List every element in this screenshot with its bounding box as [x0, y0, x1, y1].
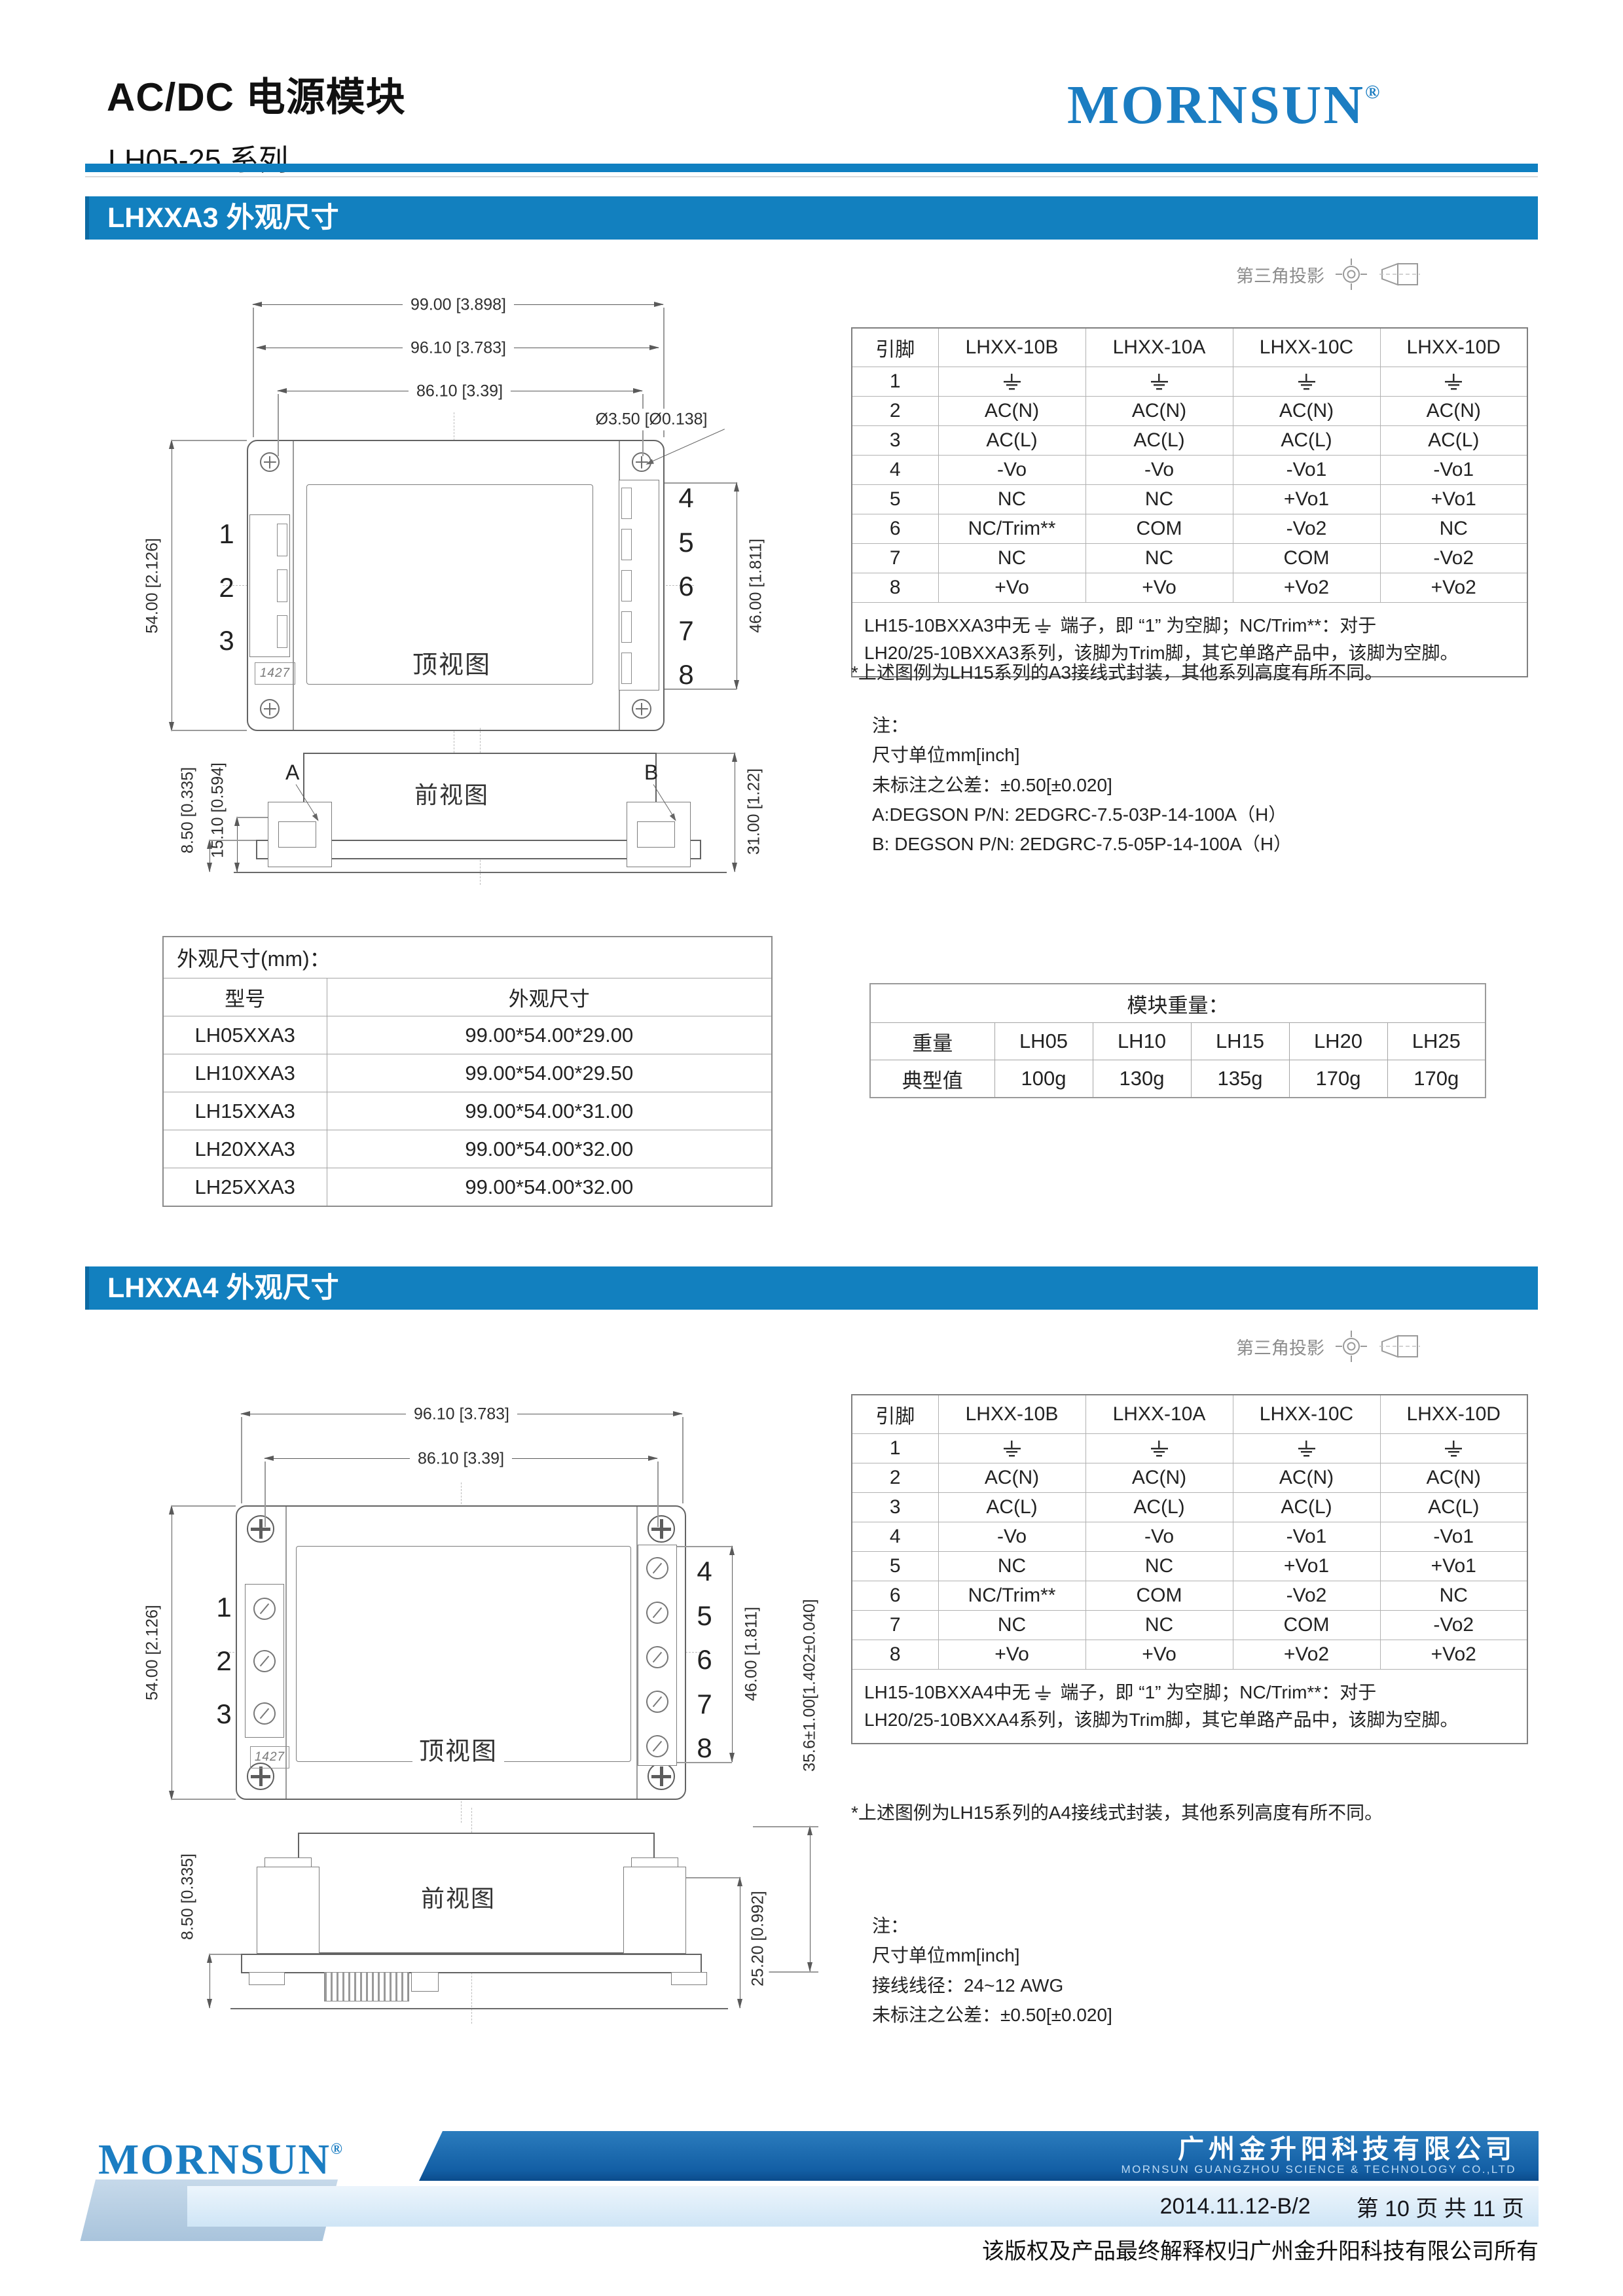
pin-cell: 6 — [852, 1581, 938, 1611]
pin-table-header: LHXX-10D — [1380, 328, 1527, 367]
terminal-pad — [621, 488, 632, 519]
weight-table-container: 模块重量：重量LH05LH10LH15LH20LH25典型值100g130g13… — [869, 983, 1486, 1098]
pin-cell: 1 — [852, 1434, 938, 1463]
case-badge: 1427 — [255, 662, 295, 685]
datasheet-page: AC/DC 电源模块 LH05-25 系列 MORNSUN® LHXXA3 外观… — [0, 0, 1623, 2296]
dim-line — [237, 817, 238, 872]
pin-number: 6 — [678, 573, 693, 600]
pin-cell: AC(L) — [938, 426, 1085, 456]
mounting-screw-icon — [247, 1515, 274, 1543]
pin-cell: NC — [1085, 1552, 1233, 1581]
note-line: 尺寸单位mm[inch] — [872, 740, 1292, 770]
pin-cell: NC — [1085, 1611, 1233, 1640]
pin-number: 7 — [678, 617, 693, 645]
callout-b: B — [644, 761, 658, 785]
extension-line — [278, 394, 279, 456]
footer-copyright: 该版权及产品最终解释权归广州金升阳科技有限公司所有 — [0, 2233, 1539, 2265]
dimension-cell: 99.00*54.00*32.00 — [327, 1130, 772, 1168]
dim-overall-height: 35.6±1.00[1.402±0.040] — [799, 1592, 821, 1778]
a3-notes: 注：尺寸单位mm[inch]未标注之公差：±0.50[±0.020]A:DEGS… — [872, 711, 1292, 859]
dimension-table-title: 外观尺寸(mm)： — [163, 937, 772, 978]
pin-cell: -Vo2 — [1380, 544, 1527, 573]
pin-number: 4 — [697, 1558, 712, 1585]
series-subtitle: LH05-25 系列 — [108, 136, 288, 179]
footer-company-en: MORNSUN GUANGZHOU SCIENCE & TECHNOLOGY C… — [1122, 2163, 1516, 2176]
dim-2520: 25.20 [0.992] — [748, 1884, 769, 1993]
mounting-screw-icon — [260, 452, 280, 472]
pin-cell: 7 — [852, 544, 938, 573]
top-view-label: 顶视图 — [406, 643, 498, 682]
pin-table-header: LHXX-10B — [938, 328, 1085, 367]
earth-ground-icon — [1034, 1685, 1051, 1701]
pin-table-header: LHXX-10A — [1085, 328, 1233, 367]
pin-cell: 5 — [852, 1552, 938, 1581]
weight-cell: LH10 — [1093, 1023, 1191, 1060]
terminal-tower-right — [623, 1867, 686, 1954]
doc-code: 2014.11.12-B/2 — [1160, 2194, 1311, 2219]
mounting-screw-icon — [632, 699, 651, 719]
pin-cell: 4 — [852, 1522, 938, 1552]
pin-cell: 5 — [852, 485, 938, 514]
dimension-table-header: 外观尺寸 — [327, 978, 772, 1016]
registered-mark: ® — [1365, 81, 1381, 103]
pin-table-note: LH15-10BXXA4中无 端子，即 “1” 为空脚；NC/Trim**：对于… — [852, 1670, 1527, 1744]
header-rule-shadow — [85, 176, 1538, 177]
earth-ground-icon — [1444, 1441, 1463, 1458]
projection-circle-icon — [1334, 1329, 1369, 1364]
pin-numbers-left: 123 — [213, 520, 240, 655]
a4-pin-table-container: 引脚LHXX-10BLHXX-10ALHXX-10CLHXX-10D12AC(N… — [851, 1394, 1528, 1744]
dim-850: 8.50 [0.335] — [177, 1847, 199, 1946]
pin-cell: 6 — [852, 514, 938, 544]
terminal-tower-left — [257, 1867, 319, 1954]
earth-ground-icon — [1002, 374, 1022, 391]
extension-line — [665, 689, 737, 690]
pin-number: 3 — [219, 627, 234, 655]
dim-3100: 31.00 [1.22] — [744, 762, 765, 861]
pin-number: 2 — [219, 574, 234, 601]
extension-line — [665, 482, 737, 484]
pin-number: 5 — [678, 529, 693, 556]
pin-table-header: LHXX-10C — [1233, 328, 1380, 367]
pin-cell: 7 — [852, 1611, 938, 1640]
pin-table-header: LHXX-10B — [938, 1395, 1085, 1434]
pin-cell: 8 — [852, 1640, 938, 1670]
ground-line — [234, 872, 727, 873]
footer-company-cn: 广州金升阳科技有限公司 — [1178, 2136, 1516, 2163]
dim-line — [172, 440, 172, 731]
note-line: B: DEGSON P/N: 2EDGRC-7.5-05P-14-100A（H） — [872, 829, 1292, 859]
weight-cell: LH20 — [1289, 1023, 1387, 1060]
dim-line — [737, 482, 737, 689]
pin-cell: NC — [1380, 514, 1527, 544]
pin-cell: +Vo — [1085, 573, 1233, 603]
pin-cell: AC(L) — [1085, 426, 1233, 456]
dimension-cell: LH15XXA3 — [163, 1092, 327, 1130]
pin-number: 3 — [216, 1700, 231, 1728]
module-separator — [293, 441, 294, 730]
mounting-screw-icon — [260, 699, 280, 719]
dim-hole: Ø3.50 [Ø0.138] — [588, 409, 716, 431]
pin-cell: COM — [1085, 1581, 1233, 1611]
extension-line — [172, 1799, 236, 1800]
projection-circle-icon — [1334, 257, 1369, 292]
pin-cell: +Vo1 — [1233, 485, 1380, 514]
bottom-connector-tab — [411, 1972, 439, 1992]
dimension-cell: LH10XXA3 — [163, 1054, 327, 1092]
terminal-pad — [277, 569, 287, 602]
dim-54: 54.00 [2.126] — [142, 531, 164, 640]
page-title: AC/DC 电源模块 — [107, 65, 406, 122]
bottom-connector-ribbed — [324, 1972, 409, 2001]
pin-cell — [1085, 367, 1233, 397]
weight-cell: 130g — [1093, 1060, 1191, 1098]
pin-numbers-right: 45678 — [673, 484, 699, 689]
note-line: 未标注之公差：±0.50[±0.020] — [872, 2000, 1112, 2030]
pin-cell: AC(L) — [1380, 1493, 1527, 1522]
pin-cell: COM — [1085, 514, 1233, 544]
dim-54: 54.00 [2.126] — [142, 1598, 164, 1707]
foot — [249, 1972, 285, 1985]
extension-line — [677, 1546, 732, 1547]
dim-line — [732, 1546, 733, 1762]
pin-cell: -Vo1 — [1233, 1522, 1380, 1552]
dimension-cell: 99.00*54.00*32.00 — [327, 1168, 772, 1207]
dim-46: 46.00 [1.811] — [746, 532, 767, 639]
dimension-cell: LH20XXA3 — [163, 1130, 327, 1168]
third-angle-projection: 第三角投影 — [1236, 1329, 1421, 1364]
pin-cell: +Vo2 — [1380, 573, 1527, 603]
ground-line — [230, 2008, 728, 2009]
pin-cell: AC(N) — [1380, 397, 1527, 426]
pin-cell: 4 — [852, 456, 938, 485]
pin-number: 1 — [219, 520, 234, 548]
pin-cell — [1380, 367, 1527, 397]
extension-line — [210, 1954, 241, 1955]
pin-cell: -Vo2 — [1233, 514, 1380, 544]
pin-cell: NC — [938, 1611, 1085, 1640]
pin-cell: COM — [1233, 544, 1380, 573]
dim-line — [810, 1826, 811, 1971]
pin-cell: +Vo — [1085, 1640, 1233, 1670]
pin-cell — [1085, 1434, 1233, 1463]
pin-cell: NC — [938, 544, 1085, 573]
pin-cell: +Vo1 — [1380, 1552, 1527, 1581]
pin-cell — [1233, 1434, 1380, 1463]
weight-cell: 重量 — [870, 1023, 994, 1060]
pin-cell: COM — [1233, 1611, 1380, 1640]
pin-cell: AC(L) — [1380, 426, 1527, 456]
extension-line — [172, 440, 247, 441]
pin-cell: AC(N) — [1085, 1463, 1233, 1493]
pin-numbers-right: 45678 — [691, 1558, 718, 1762]
pin-number: 1 — [216, 1594, 231, 1621]
pin-cell: 8 — [852, 573, 938, 603]
case-badge: 1427 — [250, 1746, 289, 1768]
earth-ground-icon — [1297, 374, 1317, 391]
projection-cone-icon — [1378, 1331, 1421, 1361]
dim-line — [210, 1954, 210, 2008]
note-line: 注： — [872, 711, 1292, 740]
dim-96: 96.10 [3.783] — [403, 338, 514, 359]
pin-cell: -Vo — [938, 456, 1085, 485]
pin-table-header: LHXX-10D — [1380, 1395, 1527, 1434]
pin-cell: AC(L) — [938, 1493, 1085, 1522]
pin-cell: AC(N) — [938, 1463, 1085, 1493]
page-info: 第 10 页 共 11 页 — [1357, 2191, 1524, 2223]
pin-cell — [1233, 367, 1380, 397]
earth-ground-icon — [1150, 374, 1169, 391]
pin-cell: 1 — [852, 367, 938, 397]
pin-table-header: LHXX-10C — [1233, 1395, 1380, 1434]
pin-cell: -Vo1 — [1380, 1522, 1527, 1552]
terminal-pad — [621, 529, 632, 560]
pin-cell: NC/Trim** — [938, 1581, 1085, 1611]
weight-cell: LH05 — [994, 1023, 1093, 1060]
pin-table-header: 引脚 — [852, 1395, 938, 1434]
pin-cell: AC(L) — [1233, 1493, 1380, 1522]
footer-mornsun-logo: MORNSUN® — [98, 2135, 344, 2185]
weight-cell: 170g — [1289, 1060, 1387, 1098]
note-line: 未标注之公差：±0.50[±0.020] — [872, 770, 1292, 800]
extension-line — [657, 753, 735, 754]
mornsun-logo: MORNSUN® — [1067, 73, 1381, 137]
dimension-table-header: 型号 — [163, 978, 327, 1016]
pin-cell: AC(N) — [1233, 1463, 1380, 1493]
pin-cell: +Vo2 — [1233, 1640, 1380, 1670]
pin-cell: AC(N) — [1233, 397, 1380, 426]
front-view-label: 前视图 — [408, 775, 496, 812]
callout-a: A — [285, 761, 299, 785]
registered-mark: ® — [331, 2141, 344, 2158]
extension-line — [237, 817, 268, 818]
earth-ground-icon — [1150, 1441, 1169, 1458]
dimension-cell: 99.00*54.00*29.00 — [327, 1016, 772, 1054]
dimension-cell: 99.00*54.00*29.50 — [327, 1054, 772, 1092]
weight-table-title: 模块重量： — [870, 984, 1486, 1023]
pin-cell: NC — [1085, 544, 1233, 573]
weight-cell: 170g — [1387, 1060, 1486, 1098]
pin-cell: 3 — [852, 1493, 938, 1522]
dim-1510: 15.10 [0.594] — [208, 756, 229, 865]
dim-850: 8.50 [0.335] — [177, 761, 199, 860]
weight-cell: 135g — [1191, 1060, 1289, 1098]
pin-cell: -Vo — [938, 1522, 1085, 1552]
pin-cell: NC/Trim** — [938, 514, 1085, 544]
dimension-cell: LH05XXA3 — [163, 1016, 327, 1054]
pin-cell — [938, 367, 1085, 397]
pin-cell: NC — [1380, 1581, 1527, 1611]
extension-line — [682, 1417, 684, 1503]
weight-cell: 典型值 — [870, 1060, 994, 1098]
mounting-screw-icon — [647, 1763, 675, 1790]
earth-ground-icon — [1034, 619, 1051, 634]
pin-table-header: LHXX-10A — [1085, 1395, 1233, 1434]
weight-cell: 100g — [994, 1060, 1093, 1098]
pin-cell: +Vo — [938, 573, 1085, 603]
terminal-pad — [277, 524, 287, 556]
dim-96: 96.10 [3.783] — [406, 1404, 517, 1426]
pin-number: 4 — [678, 484, 693, 512]
pin-cell: -Vo1 — [1233, 456, 1380, 485]
extension-line — [657, 1462, 659, 1527]
front-base — [241, 1954, 702, 1973]
pin-number: 5 — [697, 1602, 712, 1630]
earth-ground-icon — [1297, 1441, 1317, 1458]
dim-86: 86.10 [3.39] — [410, 1448, 512, 1470]
pin-cell: -Vo1 — [1380, 456, 1527, 485]
pin-number: 2 — [216, 1647, 231, 1675]
a4-figure-note: *上述图例为LH15系列的A4接线式封装，其他系列高度有所不同。 — [851, 1799, 1383, 1825]
dim-46: 46.00 [1.811] — [741, 1600, 763, 1708]
a3-pin-table-container: 引脚LHXX-10BLHXX-10ALHXX-10CLHXX-10D12AC(N… — [851, 327, 1528, 677]
pin-function-table: 引脚LHXX-10BLHXX-10ALHXX-10CLHXX-10D12AC(N… — [851, 1394, 1528, 1744]
weight-cell: LH15 — [1191, 1023, 1289, 1060]
pin-number: 7 — [697, 1691, 712, 1718]
dimension-cell: 99.00*54.00*31.00 — [327, 1092, 772, 1130]
extension-line — [264, 1462, 266, 1527]
section-heading-lhxxa4: LHXXA4 外观尺寸 — [85, 1266, 1538, 1310]
pin-numbers-left: 123 — [211, 1594, 237, 1728]
dim-86: 86.10 [3.39] — [409, 381, 511, 403]
dim-line — [740, 1877, 740, 2008]
pin-table-header: 引脚 — [852, 328, 938, 367]
terminal-pad — [621, 653, 632, 684]
dim-99: 99.00 [3.898] — [403, 295, 514, 316]
earth-ground-icon — [1002, 1441, 1022, 1458]
extension-line — [210, 840, 256, 841]
dimension-table: 外观尺寸(mm)：型号外观尺寸LH05XXA399.00*54.00*29.00… — [162, 936, 773, 1207]
note-line: 注： — [872, 1911, 1112, 1941]
extension-line — [686, 1877, 740, 1878]
a3-figure-note: *上述图例为LH15系列的A3接线式封装，其他系列高度有所不同。 — [851, 658, 1383, 685]
front-view-label: 前视图 — [414, 1878, 502, 1915]
pin-cell: 3 — [852, 426, 938, 456]
extension-line — [753, 1826, 818, 1827]
note-line: 接线线径：24~12 AWG — [872, 1971, 1112, 2000]
front-connector-a-slot — [278, 821, 316, 848]
terminal-pad — [621, 611, 632, 643]
foot — [671, 1972, 707, 1985]
pin-cell: AC(N) — [1085, 397, 1233, 426]
extension-line — [241, 1417, 242, 1503]
pin-cell: NC — [938, 1552, 1085, 1581]
pin-cell: +Vo1 — [1380, 485, 1527, 514]
top-view-label: 顶视图 — [412, 1730, 504, 1768]
pin-cell: -Vo — [1085, 456, 1233, 485]
pin-cell: AC(L) — [1085, 1493, 1233, 1522]
pin-cell: -Vo2 — [1380, 1611, 1527, 1640]
pin-number: 8 — [697, 1734, 712, 1762]
projection-label: 第三角投影 — [1236, 262, 1324, 287]
dim-line — [172, 1505, 172, 1800]
projection-label: 第三角投影 — [1236, 1334, 1324, 1359]
pin-cell: NC — [938, 485, 1085, 514]
dimension-cell: LH25XXA3 — [163, 1168, 327, 1207]
pin-cell — [1380, 1434, 1527, 1463]
pin-cell: +Vo2 — [1233, 573, 1380, 603]
projection-cone-icon — [1378, 259, 1421, 289]
terminal-pad — [621, 570, 632, 601]
pin-cell: +Vo — [938, 1640, 1085, 1670]
note-line: A:DEGSON P/N: 2EDGRC-7.5-03P-14-100A（H） — [872, 800, 1292, 829]
earth-ground-icon — [1444, 374, 1463, 391]
pin-cell — [938, 1434, 1085, 1463]
extension-line — [677, 1762, 732, 1763]
terminal-pad — [277, 615, 287, 648]
footer-dark-band: 广州金升阳科技有限公司 MORNSUN GUANGZHOU SCIENCE & … — [419, 2131, 1539, 2181]
pin-cell: AC(L) — [1233, 426, 1380, 456]
front-connector-b-slot — [637, 821, 675, 848]
pin-cell: AC(N) — [938, 397, 1085, 426]
pin-function-table: 引脚LHXX-10BLHXX-10ALHXX-10CLHXX-10D12AC(N… — [851, 327, 1528, 677]
pin-cell: -Vo — [1085, 1522, 1233, 1552]
pin-cell: -Vo2 — [1233, 1581, 1380, 1611]
a4-notes: 注：尺寸单位mm[inch]接线线径：24~12 AWG未标注之公差：±0.50… — [872, 1911, 1112, 2030]
third-angle-projection: 第三角投影 — [1236, 257, 1421, 292]
pin-number: 8 — [678, 661, 693, 689]
weight-cell: LH25 — [1387, 1023, 1486, 1060]
extension-line — [172, 1505, 236, 1507]
extension-line — [253, 308, 254, 437]
extension-line — [172, 730, 247, 731]
pin-cell: +Vo2 — [1380, 1640, 1527, 1670]
mounting-screw-icon — [647, 1515, 675, 1543]
section-heading-lhxxa3: LHXXA3 外观尺寸 — [85, 196, 1538, 240]
pin-cell: 2 — [852, 397, 938, 426]
pin-number: 6 — [697, 1646, 712, 1674]
note-line: 尺寸单位mm[inch] — [872, 1941, 1112, 1970]
size-table-container: 外观尺寸(mm)：型号外观尺寸LH05XXA399.00*54.00*29.00… — [162, 936, 773, 1207]
weight-table: 模块重量：重量LH05LH10LH15LH20LH25典型值100g130g13… — [869, 983, 1486, 1098]
pin-cell: AC(N) — [1380, 1463, 1527, 1493]
pin-cell: NC — [1085, 485, 1233, 514]
pin-cell: +Vo1 — [1233, 1552, 1380, 1581]
dim-line — [735, 753, 735, 872]
header-rule — [85, 164, 1538, 172]
pin-cell: 2 — [852, 1463, 938, 1493]
footer-light-band: 2014.11.12-B/2 第 10 页 共 11 页 — [187, 2186, 1539, 2227]
